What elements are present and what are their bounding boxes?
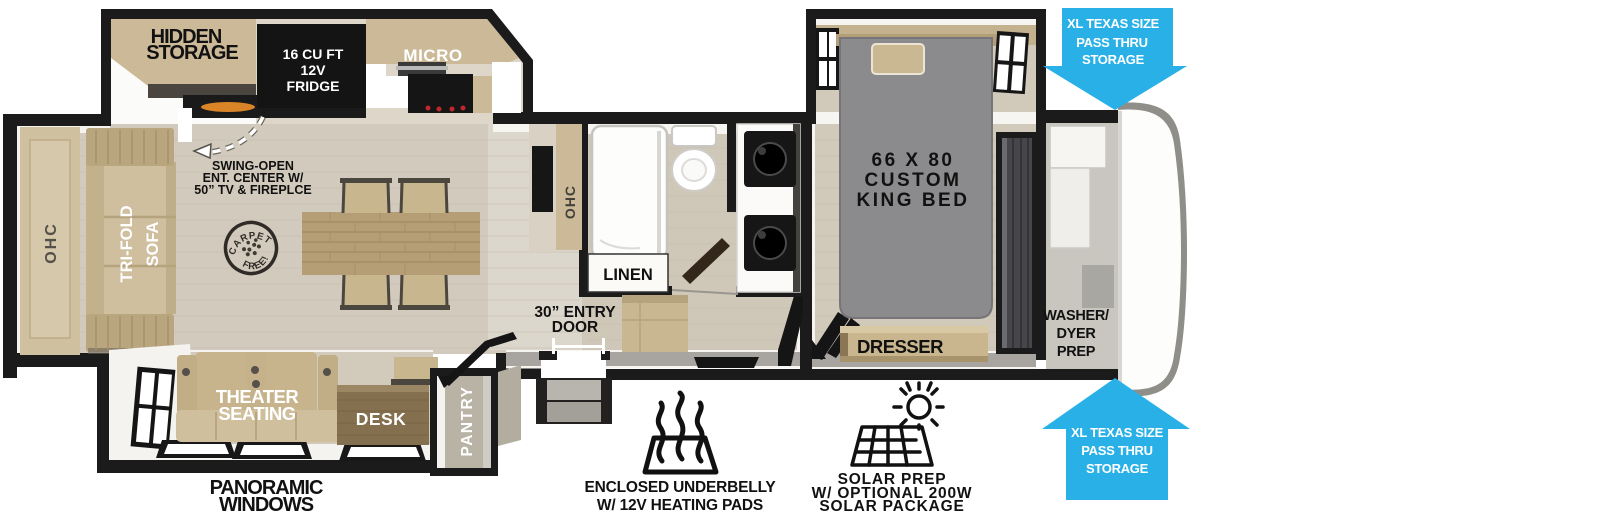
- svg-text:DRESSER: DRESSER: [857, 336, 943, 357]
- svg-text:16 CU FT: 16 CU FT: [283, 46, 344, 62]
- svg-text:STORAGE: STORAGE: [1086, 461, 1149, 476]
- svg-text:W/ 12V HEATING PADS: W/ 12V HEATING PADS: [597, 497, 763, 511]
- svg-text:FRIDGE: FRIDGE: [287, 78, 340, 94]
- svg-text:KING BED: KING BED: [857, 190, 970, 211]
- svg-text:STORAGE: STORAGE: [1082, 52, 1145, 67]
- svg-text:PANTRY: PANTRY: [459, 386, 476, 457]
- svg-text:SOLAR PACKAGE: SOLAR PACKAGE: [819, 498, 964, 511]
- svg-text:XL TEXAS SIZE: XL TEXAS SIZE: [1071, 425, 1164, 440]
- svg-text:PASS THRU: PASS THRU: [1076, 35, 1147, 50]
- svg-text:66 X 80: 66 X 80: [872, 150, 955, 171]
- svg-text:OHC: OHC: [562, 185, 578, 219]
- svg-text:DOOR: DOOR: [552, 319, 599, 336]
- svg-text:12V: 12V: [301, 62, 327, 78]
- svg-text:WASHER/: WASHER/: [1043, 308, 1109, 324]
- svg-text:SOFA: SOFA: [144, 221, 162, 266]
- svg-text:WINDOWS: WINDOWS: [219, 494, 314, 511]
- svg-text:XL TEXAS SIZE: XL TEXAS SIZE: [1067, 16, 1160, 31]
- svg-text:TRI-FOLD: TRI-FOLD: [118, 205, 136, 282]
- svg-text:PREP: PREP: [1057, 344, 1096, 360]
- svg-text:DESK: DESK: [356, 409, 407, 429]
- svg-text:OHC: OHC: [43, 222, 60, 264]
- svg-text:DYER: DYER: [1056, 326, 1096, 342]
- svg-text:CUSTOM: CUSTOM: [865, 170, 962, 191]
- svg-text:ENCLOSED UNDERBELLY: ENCLOSED UNDERBELLY: [584, 479, 776, 496]
- svg-text:STORAGE: STORAGE: [146, 42, 238, 64]
- svg-text:50” TV & FIREPLCE: 50” TV & FIREPLCE: [194, 183, 311, 197]
- svg-text:LINEN: LINEN: [603, 266, 653, 284]
- svg-text:SEATING: SEATING: [218, 403, 295, 424]
- svg-text:PASS THRU: PASS THRU: [1081, 443, 1152, 458]
